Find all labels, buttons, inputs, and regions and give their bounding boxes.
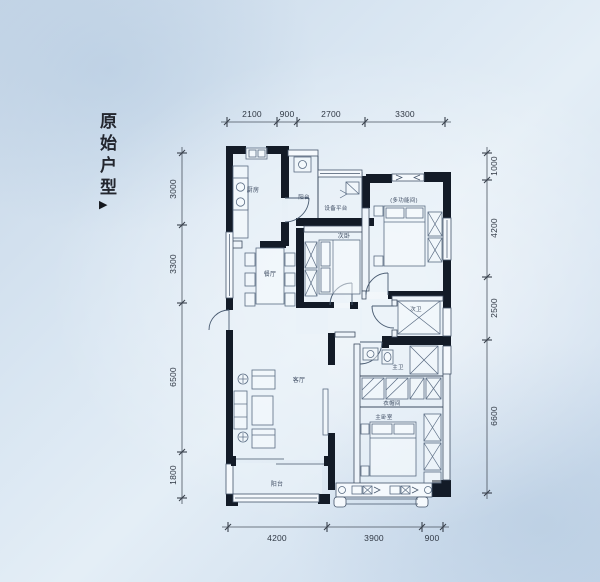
room-label-equipment-platform: 设备平台 <box>324 204 347 212</box>
dim-bottom-1: 3900 <box>364 533 384 543</box>
dim-right-2: 2500 <box>489 298 499 318</box>
master-bedroom-furniture <box>361 414 441 483</box>
room-label-service-balcony: 阳台 <box>298 193 310 201</box>
dim-bottom-0: 4200 <box>267 533 287 543</box>
north-bedroom-furniture <box>374 206 442 266</box>
dim-top-1: 900 <box>280 109 295 119</box>
dim-right-0: 1000 <box>489 156 499 176</box>
room-label-living: 客厅 <box>293 376 306 384</box>
room-label-north-bedroom-note: (多功能间) <box>390 196 417 204</box>
dimension-right: 1000 4200 2500 6600 <box>482 147 499 499</box>
room-label-balcony: 阳台 <box>271 480 284 488</box>
dim-top-0: 2100 <box>242 109 262 119</box>
dimension-left: 3000 3300 6500 1800 <box>168 147 187 504</box>
dim-top-3: 3300 <box>395 109 415 119</box>
room-label-master-bath: 主卫 <box>392 363 404 371</box>
room-label-second-bedroom: 次卧 <box>338 232 351 240</box>
room-label-dining: 餐厅 <box>264 270 277 278</box>
washer <box>294 157 311 172</box>
room-label-guest-bath: 次卫 <box>410 305 422 313</box>
dim-left-3: 1800 <box>168 465 178 485</box>
dim-top-2: 2700 <box>321 109 341 119</box>
dim-right-1: 4200 <box>489 218 499 238</box>
room-label-cloakroom: 衣帽间 <box>383 399 400 407</box>
dim-right-3: 6600 <box>489 406 499 426</box>
dim-bottom-2: 900 <box>425 533 440 543</box>
dim-left-2: 6500 <box>168 367 178 387</box>
floor-plan-drawing: 厨房 阳台 设备平台 (多功能间) 次卧 餐厅 客厅 次卫 主卫 衣帽间 主卧室… <box>0 0 600 582</box>
cloakroom-wardrobes <box>362 378 441 399</box>
guest-bath-fixtures <box>398 301 440 334</box>
second-bedroom-furniture <box>305 240 360 296</box>
room-label-master-bedroom: 主卧室 <box>375 413 393 421</box>
dimension-top: 2100 900 2700 3300 <box>221 109 451 127</box>
dim-left-1: 3300 <box>168 254 178 274</box>
entry-door-arc <box>209 310 229 330</box>
floorplan-page: 原始户型 ▶ <box>0 0 600 582</box>
dim-left-0: 3000 <box>168 179 178 199</box>
dimension-bottom: 4200 3900 900 <box>222 522 449 543</box>
room-label-kitchen: 厨房 <box>247 186 260 194</box>
